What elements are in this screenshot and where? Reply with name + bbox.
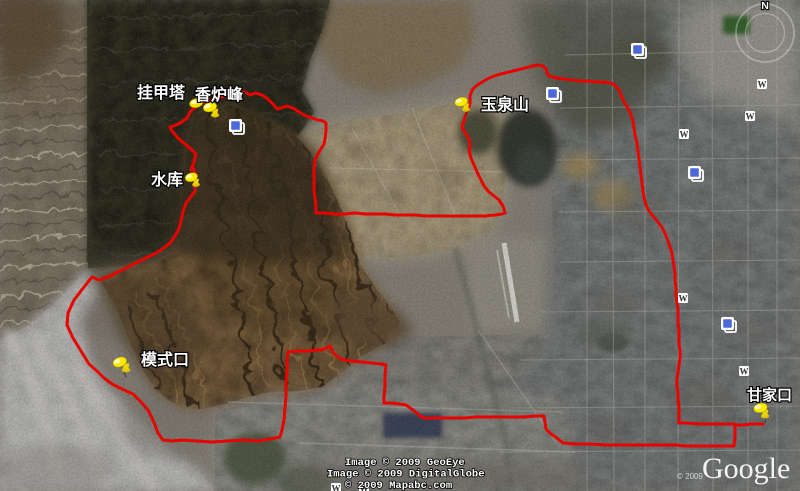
svg-text:W: W (680, 129, 689, 139)
svg-text:W: W (758, 79, 767, 89)
svg-text:Google: Google (702, 452, 790, 485)
svg-text:Image © 2009 GeoEye: Image © 2009 GeoEye (345, 457, 465, 469)
svg-text:甘家口: 甘家口 (747, 386, 792, 404)
svg-text:挂甲塔: 挂甲塔 (137, 83, 186, 102)
svg-text:© 2009 Mapabc.com: © 2009 Mapabc.com (345, 480, 452, 491)
svg-text:模式口: 模式口 (141, 350, 189, 369)
svg-text:W: W (332, 483, 341, 491)
svg-text:W: W (679, 293, 688, 303)
svg-text:© 2009: © 2009 (677, 472, 703, 481)
svg-text:香炉峰: 香炉峰 (194, 85, 244, 104)
svg-text:N: N (761, 0, 769, 12)
svg-text:水库: 水库 (151, 170, 183, 189)
svg-text:W: W (740, 366, 749, 376)
svg-text:W: W (746, 111, 755, 121)
svg-text:Image © 2009 DigitalGlobe: Image © 2009 DigitalGlobe (327, 469, 485, 481)
svg-text:玉泉山: 玉泉山 (481, 95, 529, 114)
